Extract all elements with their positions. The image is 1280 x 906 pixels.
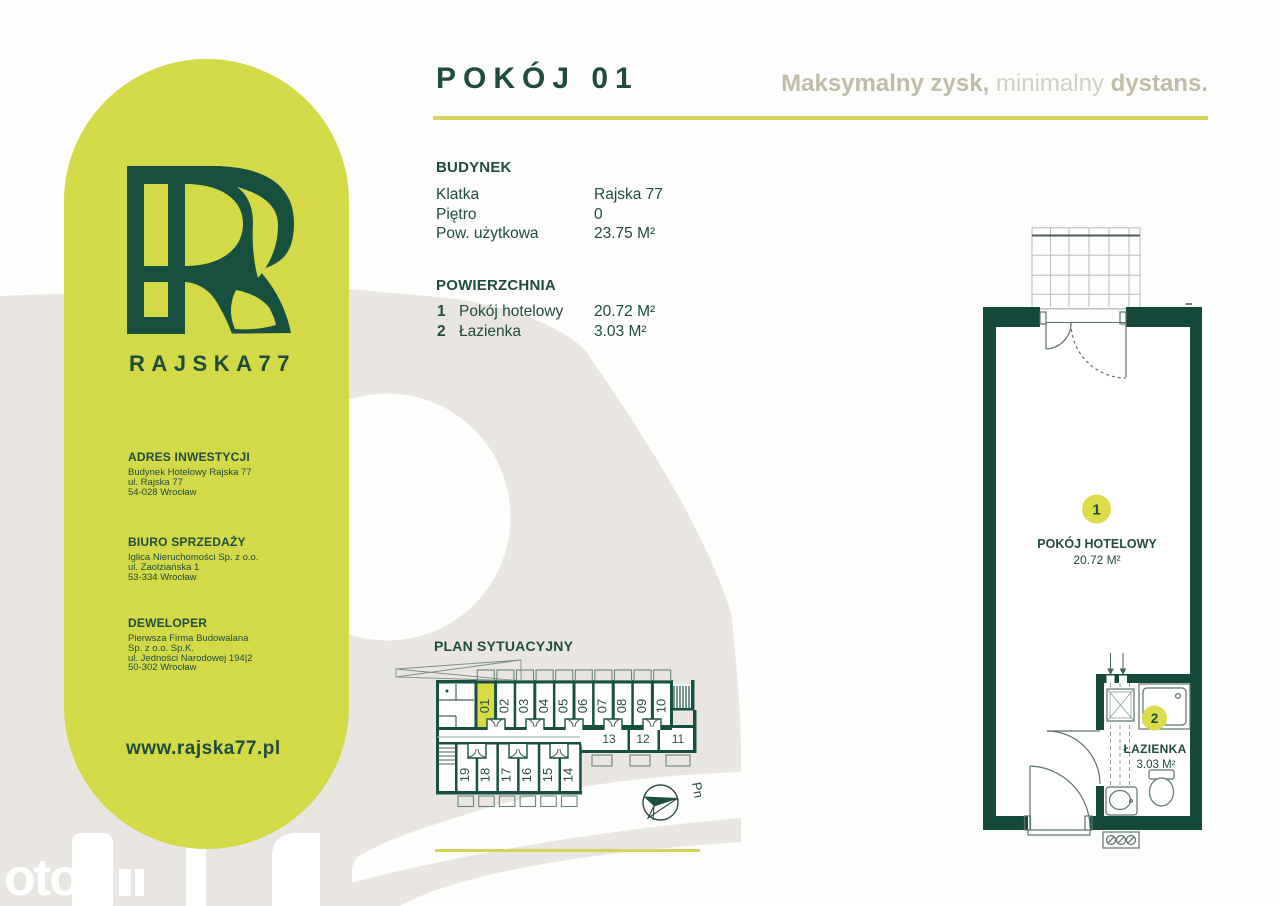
svg-text:1: 1 xyxy=(1092,502,1100,519)
svg-text:3.03 M²: 3.03 M² xyxy=(1137,759,1176,771)
svg-text:09: 09 xyxy=(634,699,649,713)
svg-text:11: 11 xyxy=(672,732,685,746)
svg-text:13: 13 xyxy=(602,732,616,746)
svg-text:03: 03 xyxy=(516,699,531,713)
svg-text:POKÓJ HOTELOWY: POKÓJ HOTELOWY xyxy=(1037,536,1157,551)
svg-text:15: 15 xyxy=(540,768,555,782)
svg-text:14: 14 xyxy=(561,768,576,782)
svg-text:2: 2 xyxy=(1151,711,1159,726)
svg-text:04: 04 xyxy=(536,699,551,713)
svg-text:07: 07 xyxy=(595,699,610,713)
svg-text:05: 05 xyxy=(555,699,570,713)
svg-text:16: 16 xyxy=(519,768,534,782)
svg-text:17: 17 xyxy=(498,768,513,782)
svg-text:ŁAZIENKA: ŁAZIENKA xyxy=(1123,742,1186,756)
svg-text:01: 01 xyxy=(477,699,492,713)
svg-text:06: 06 xyxy=(575,699,590,713)
svg-text:12: 12 xyxy=(636,732,650,746)
svg-text:10: 10 xyxy=(653,699,668,713)
svg-text:Pn: Pn xyxy=(689,781,707,799)
svg-text:18: 18 xyxy=(478,768,493,782)
svg-text:02: 02 xyxy=(497,699,512,713)
svg-text:19: 19 xyxy=(457,768,472,782)
svg-text:08: 08 xyxy=(614,699,629,713)
svg-text:oto: oto xyxy=(4,849,79,906)
svg-text:20.72 M²: 20.72 M² xyxy=(1073,553,1120,567)
